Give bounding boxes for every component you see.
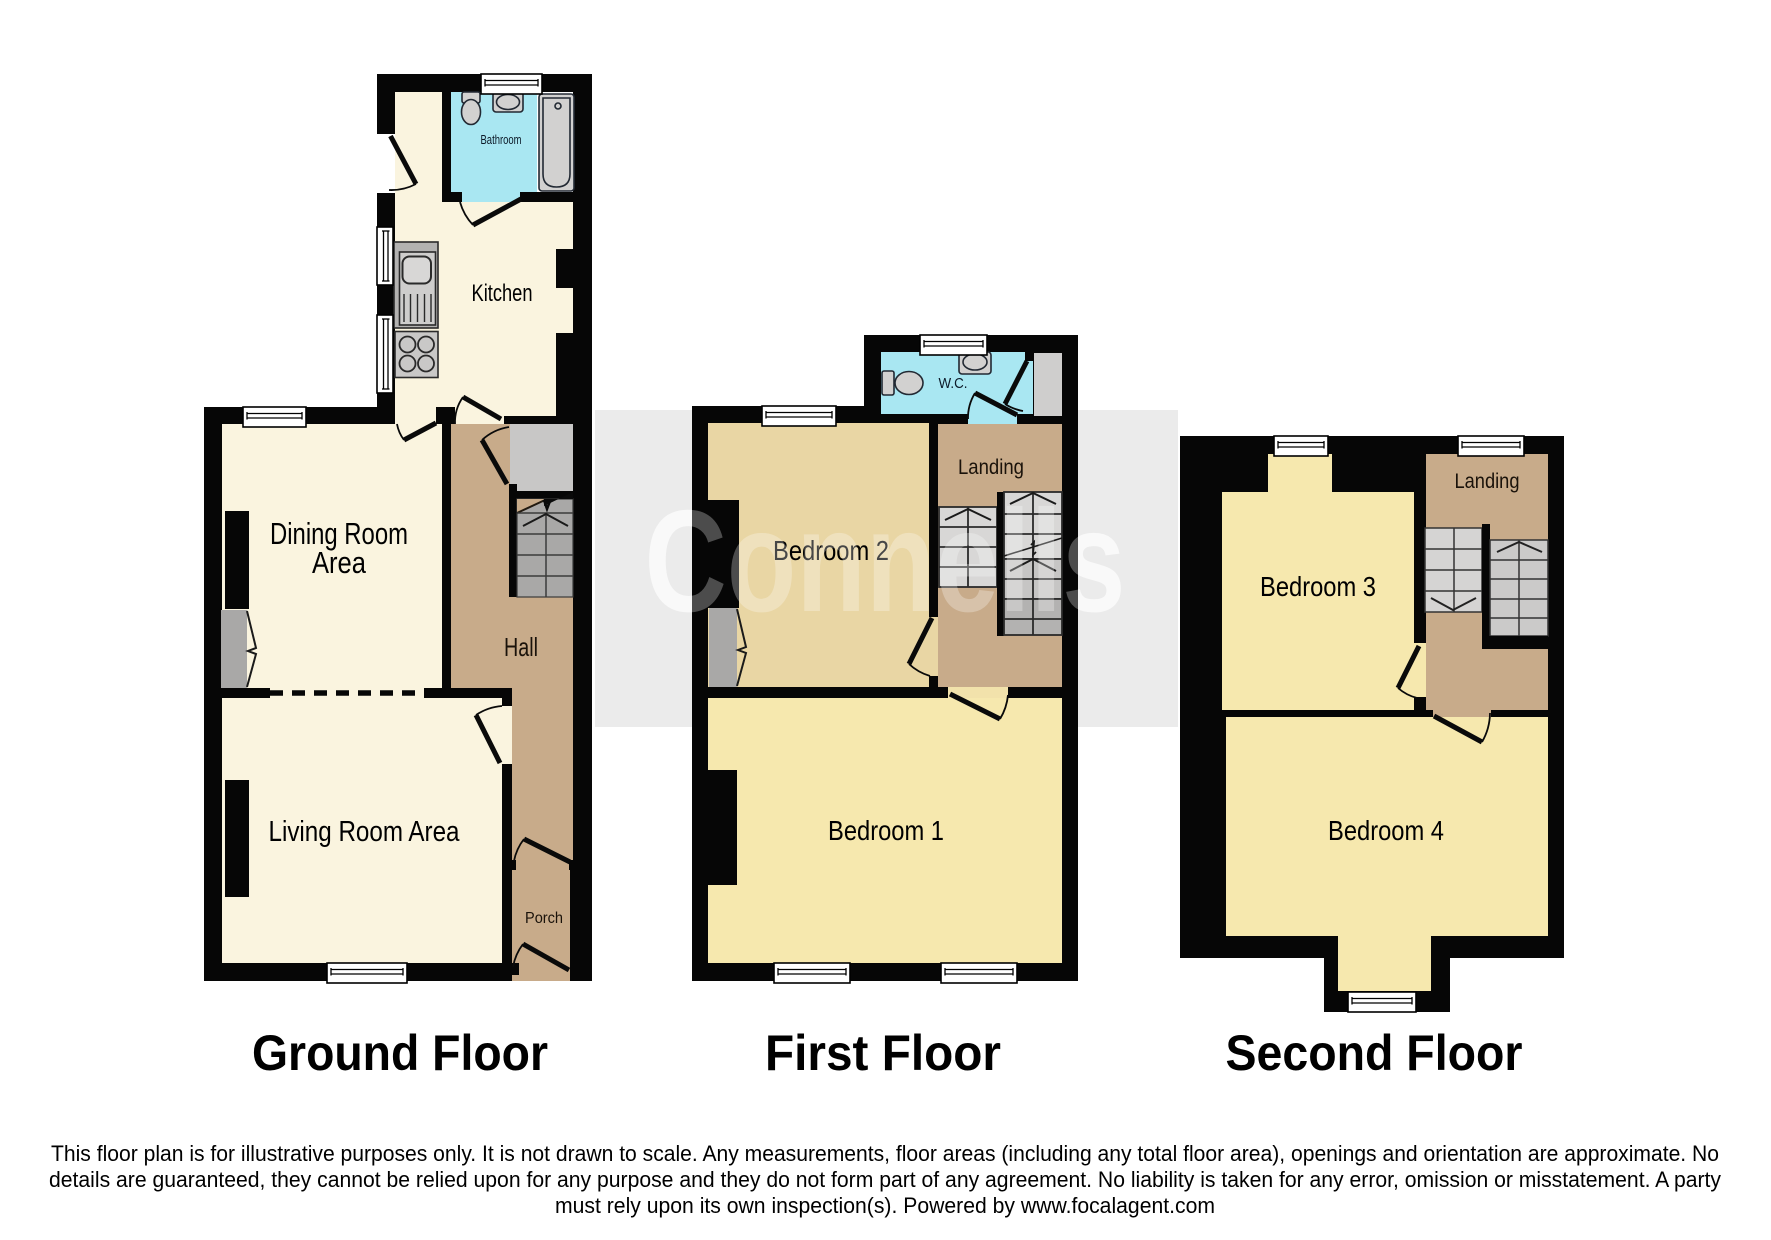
svg-text:First Floor: First Floor (765, 1025, 1001, 1081)
svg-text:Area: Area (312, 546, 366, 580)
svg-text:Landing: Landing (1455, 470, 1520, 493)
svg-text:W.C.: W.C. (939, 375, 968, 392)
svg-text:Bedroom 1: Bedroom 1 (828, 815, 944, 846)
svg-text:This floor plan is for illustr: This floor plan is for illustrative purp… (51, 1141, 1719, 1166)
svg-text:Ground Floor: Ground Floor (252, 1025, 548, 1081)
svg-text:Living Room Area: Living Room Area (269, 816, 460, 848)
svg-text:must rely upon its own inspect: must rely upon its own inspection(s). Po… (555, 1193, 1215, 1218)
svg-text:Hall: Hall (504, 632, 538, 662)
svg-text:Connells: Connells (645, 480, 1126, 642)
svg-text:details are guaranteed, they c: details are guaranteed, they cannot be r… (49, 1167, 1721, 1192)
svg-text:Porch: Porch (525, 910, 563, 927)
svg-text:Kitchen: Kitchen (472, 280, 533, 307)
svg-text:Second Floor: Second Floor (1226, 1025, 1523, 1081)
svg-text:Bedroom 3: Bedroom 3 (1260, 571, 1376, 602)
svg-text:Bedroom 4: Bedroom 4 (1328, 815, 1444, 846)
svg-text:Bathroom: Bathroom (481, 133, 522, 147)
svg-text:Landing: Landing (958, 456, 1024, 479)
